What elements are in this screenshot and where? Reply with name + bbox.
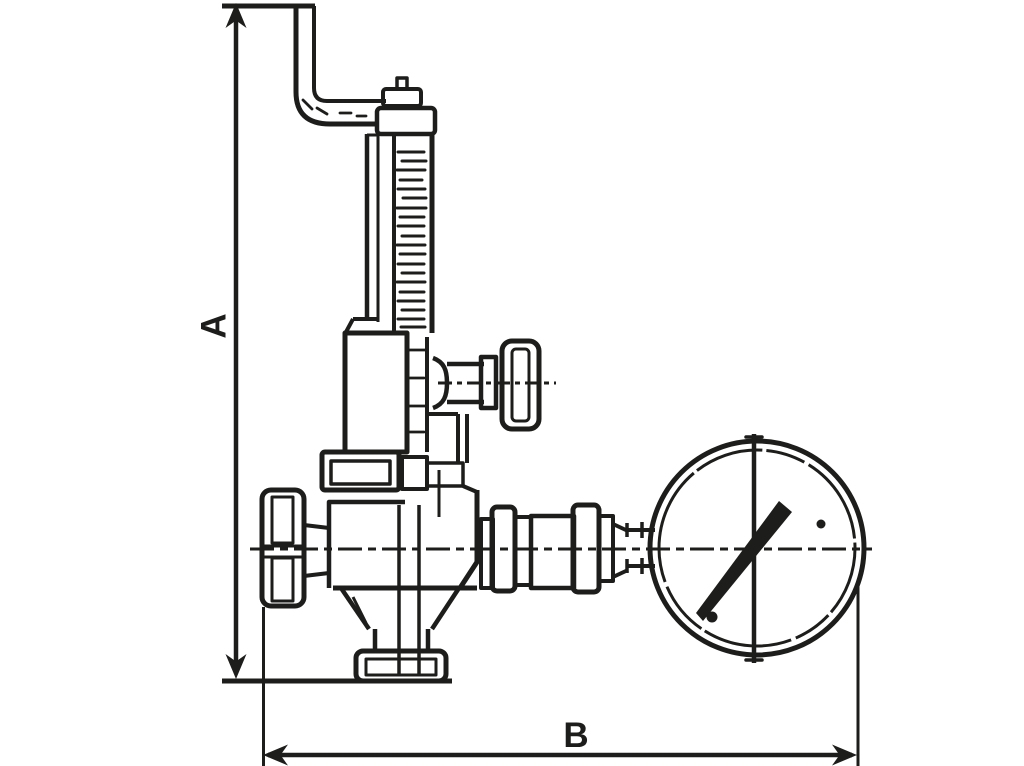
valve-dimension-drawing: A B: [0, 0, 1024, 766]
nut-right-block2: [427, 463, 463, 486]
body-right-contour: [460, 490, 477, 588]
dimension-b-label: B: [563, 716, 588, 755]
stem-top: [377, 78, 435, 134]
cap-inner-top: [272, 497, 293, 543]
drain-column: [427, 414, 467, 463]
fitting-barrel: [531, 516, 574, 588]
test-valve-handle: [502, 341, 539, 429]
spring-housing: [345, 333, 427, 452]
nut-right-block: [402, 457, 427, 489]
drawing-canvas: A B: [0, 0, 1024, 766]
spring-column: [346, 134, 432, 333]
valve-body: [329, 470, 477, 676]
gauge-dial-dot-left: [707, 612, 718, 623]
cap-inner-bottom: [272, 558, 293, 601]
dimension-a-label: A: [195, 313, 234, 338]
lever-inner-contour: [314, 6, 386, 101]
taper-right: [432, 588, 459, 629]
body-left-contour: [329, 502, 405, 588]
housing-strip-marks: [409, 350, 425, 432]
dimension-b: B: [263, 583, 858, 766]
stem-knob: [383, 89, 421, 106]
body-right-join: [463, 486, 477, 492]
inlet-flange-inner: [366, 659, 436, 675]
stem-washer: [377, 108, 435, 134]
test-valve-handle-inner: [512, 349, 529, 421]
nut-inner: [331, 461, 390, 484]
thread-hatching: [397, 152, 426, 327]
gauge-needle: [696, 501, 792, 621]
gauge-dial-dot-right: [817, 520, 826, 529]
test-lever: [296, 6, 386, 124]
housing-body: [345, 333, 407, 452]
housing-shoulder: [346, 319, 378, 332]
